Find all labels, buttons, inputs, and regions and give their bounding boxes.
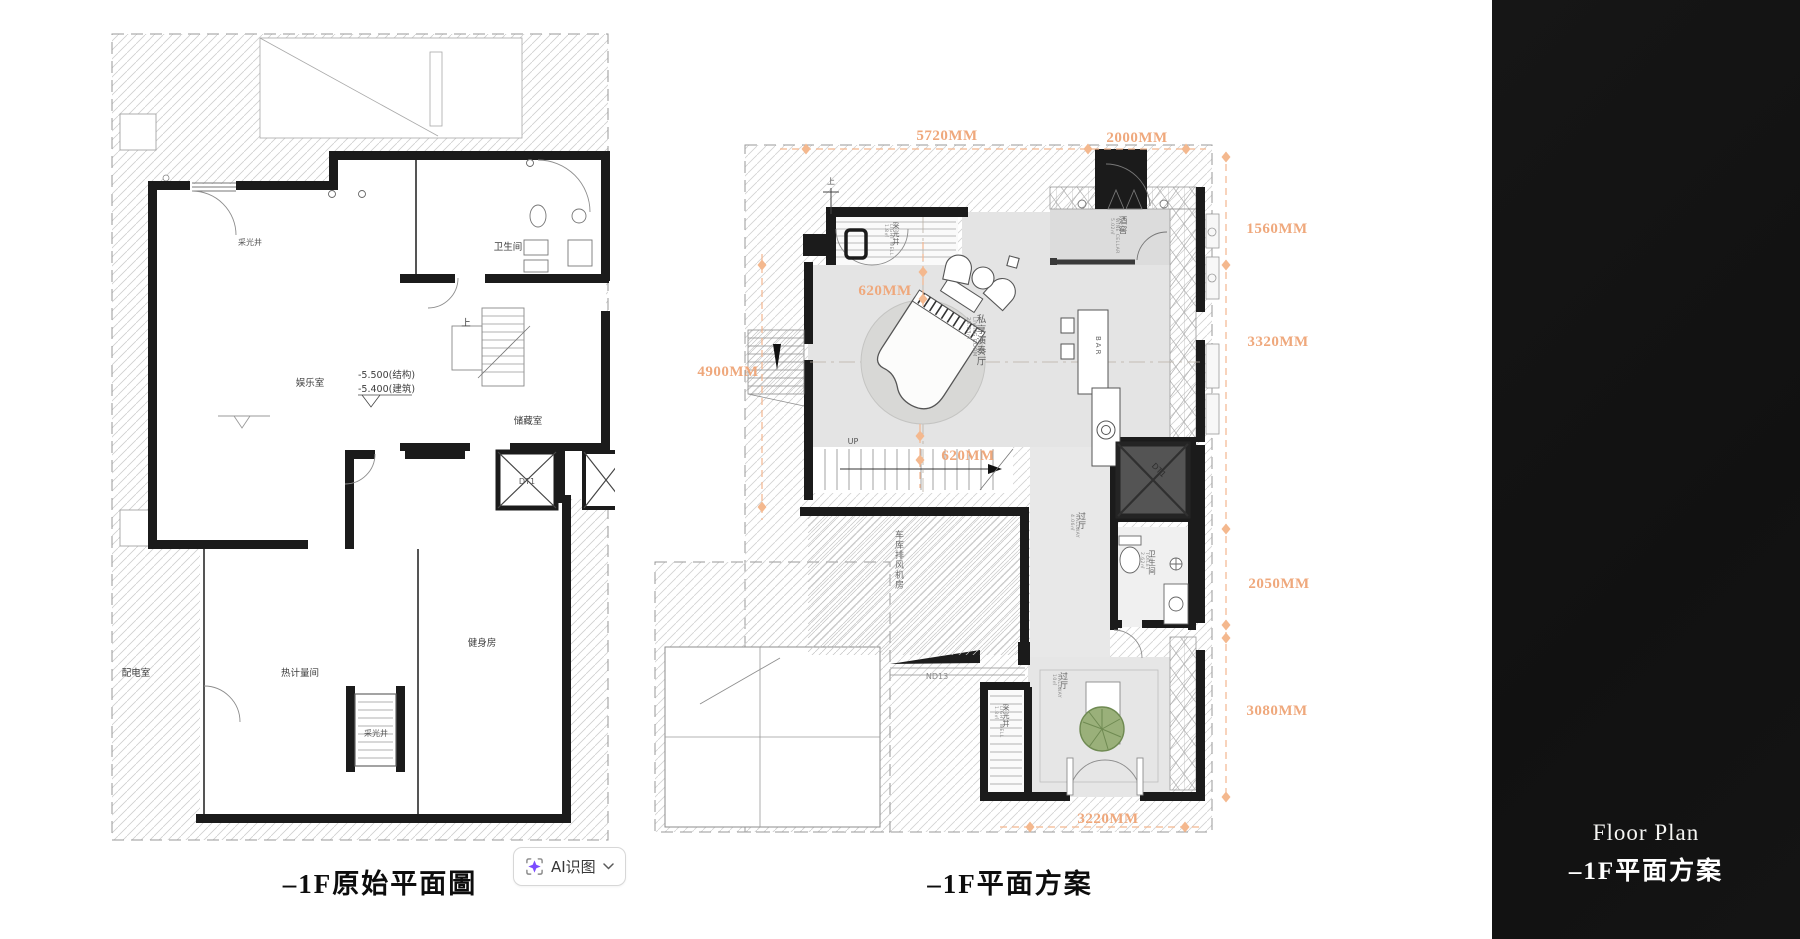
room-label-heat-meter: 热计量间 <box>281 667 319 679</box>
middle-plan-title: –1F平面方案 <box>810 862 1210 901</box>
room-label-storage: 储藏室 <box>514 415 543 427</box>
panel-caption: Floor Plan –1F平面方案 <box>1492 820 1800 887</box>
dim-620-a: 620MM <box>858 283 911 299</box>
ai-button-label: AI识图 <box>551 856 596 877</box>
dim-4900: 4900MM <box>697 364 758 380</box>
dim-3320: 3320MM <box>1247 334 1308 350</box>
svg-text:1.8㎡: 1.8㎡ <box>883 224 890 238</box>
label-bar: BAR <box>1094 336 1102 356</box>
svg-text:1.8㎡: 1.8㎡ <box>993 706 1000 720</box>
dim-3080: 3080MM <box>1246 703 1307 719</box>
dim-3220: 3220MM <box>1077 811 1138 827</box>
svg-text:车库排风机房: 车库排风机房 <box>893 529 904 590</box>
elevator-shafts <box>498 452 615 508</box>
room-label-gym: 健身房 <box>468 637 497 649</box>
room-label-light-well-bottom: 采光井 <box>364 728 388 738</box>
skylight-above <box>260 38 522 138</box>
chevron-down-icon <box>603 863 614 870</box>
elevation-structural: -5.500(结构) <box>358 369 415 381</box>
label-up-sign: 上 <box>827 177 835 186</box>
elevation-architectural: -5.400(建筑) <box>358 383 415 395</box>
svg-text:5.02㎡: 5.02㎡ <box>1109 218 1116 235</box>
panel-title-zh: –1F平面方案 <box>1492 851 1800 887</box>
elevator-dt1 <box>1118 444 1188 516</box>
page: -5.500(结构) -5.400(建筑) 采光井 娱乐室 卫生间 上 储藏室 … <box>0 0 1800 939</box>
left-floor-plan: -5.500(结构) -5.400(建筑) 采光井 娱乐室 卫生间 上 储藏室 … <box>100 26 615 848</box>
label-up: UP <box>848 437 859 446</box>
middle-floor-plan: 5720MM 2000MM 1560MM 3320MM 2050MM 3080M… <box>640 92 1320 858</box>
label-nd13: ND13 <box>926 672 948 681</box>
ai-recognize-button[interactable]: AI识图 <box>513 847 626 886</box>
room-label-light-well-top: 采光井 <box>238 237 262 247</box>
room-label-elevator: DT1 <box>519 477 535 486</box>
svg-text:10㎡: 10㎡ <box>1051 674 1058 686</box>
svg-text:4.06㎡: 4.06㎡ <box>1069 514 1076 531</box>
dim-5720: 5720MM <box>916 128 977 144</box>
room-label-bathroom: 卫生间 <box>494 241 523 253</box>
svg-text:28.03㎡: 28.03㎡ <box>965 317 973 340</box>
site-pit-1 <box>120 114 156 150</box>
ai-scan-icon <box>525 857 544 876</box>
room-label-up: 上 <box>461 318 471 329</box>
room-label-power-room: 配电室 <box>122 667 151 679</box>
dim-2050: 2050MM <box>1248 576 1309 592</box>
dim-620-b: 620MM <box>941 448 994 464</box>
right-dark-panel: Floor Plan –1F平面方案 <box>1492 0 1800 939</box>
site-marker <box>163 175 169 181</box>
panel-title-en: Floor Plan <box>1492 820 1800 846</box>
dim-2000: 2000MM <box>1106 130 1167 146</box>
room-label-entertainment: 娱乐室 <box>296 377 325 389</box>
label-garage-fan: 车库排风机房 <box>893 529 904 590</box>
dim-1560: 1560MM <box>1246 221 1307 237</box>
svg-text:2.62㎡: 2.62㎡ <box>1139 552 1146 569</box>
